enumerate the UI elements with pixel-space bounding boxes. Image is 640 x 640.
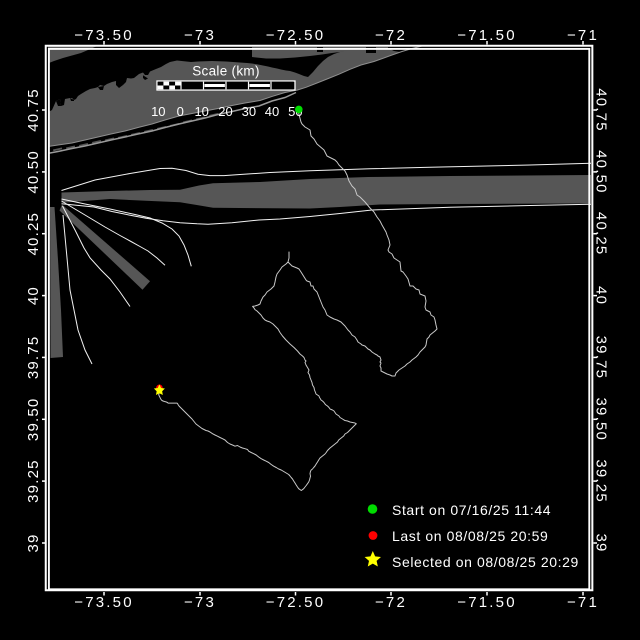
svg-text:40.25: 40.25: [593, 212, 610, 256]
svg-text:30: 30: [242, 104, 256, 119]
svg-text:40.75: 40.75: [593, 88, 610, 132]
svg-text:−71: −71: [567, 27, 599, 44]
svg-text:−72.50: −72.50: [266, 27, 326, 44]
svg-text:−73: −73: [184, 27, 216, 44]
svg-text:39.75: 39.75: [593, 336, 610, 380]
svg-text:−73: −73: [184, 594, 216, 611]
svg-text:40.50: 40.50: [593, 150, 610, 194]
svg-text:Scale (km): Scale (km): [192, 64, 260, 79]
svg-text:40.50: 40.50: [25, 150, 42, 194]
svg-text:39.25: 39.25: [25, 459, 42, 503]
svg-text:40: 40: [265, 104, 279, 119]
svg-text:−71.50: −71.50: [457, 594, 517, 611]
svg-text:−71.50: −71.50: [457, 27, 517, 44]
svg-text:−71: −71: [567, 594, 599, 611]
svg-text:39: 39: [25, 533, 42, 552]
svg-text:−72: −72: [375, 27, 407, 44]
svg-text:39: 39: [593, 533, 610, 552]
svg-text:Start on 07/16/25 11:44: Start on 07/16/25 11:44: [392, 502, 551, 518]
svg-text:Last on 08/08/25 20:59: Last on 08/08/25 20:59: [392, 528, 548, 544]
svg-text:Selected on 08/08/25 20:29: Selected on 08/08/25 20:29: [392, 554, 579, 570]
svg-text:10: 10: [151, 104, 165, 119]
svg-text:39.25: 39.25: [593, 459, 610, 503]
svg-text:20: 20: [218, 104, 232, 119]
svg-text:40: 40: [25, 286, 42, 305]
svg-text:40.25: 40.25: [25, 212, 42, 256]
svg-text:−72.50: −72.50: [266, 594, 326, 611]
svg-text:40: 40: [593, 286, 610, 305]
svg-text:39.50: 39.50: [593, 398, 610, 442]
svg-text:10: 10: [194, 104, 208, 119]
svg-text:−72: −72: [375, 594, 407, 611]
svg-text:40.75: 40.75: [25, 88, 42, 132]
svg-text:−73.50: −73.50: [74, 27, 134, 44]
svg-text:39.50: 39.50: [25, 398, 42, 442]
svg-text:39.75: 39.75: [25, 336, 42, 380]
svg-text:−73.50: −73.50: [74, 594, 134, 611]
svg-text:0: 0: [177, 104, 184, 119]
